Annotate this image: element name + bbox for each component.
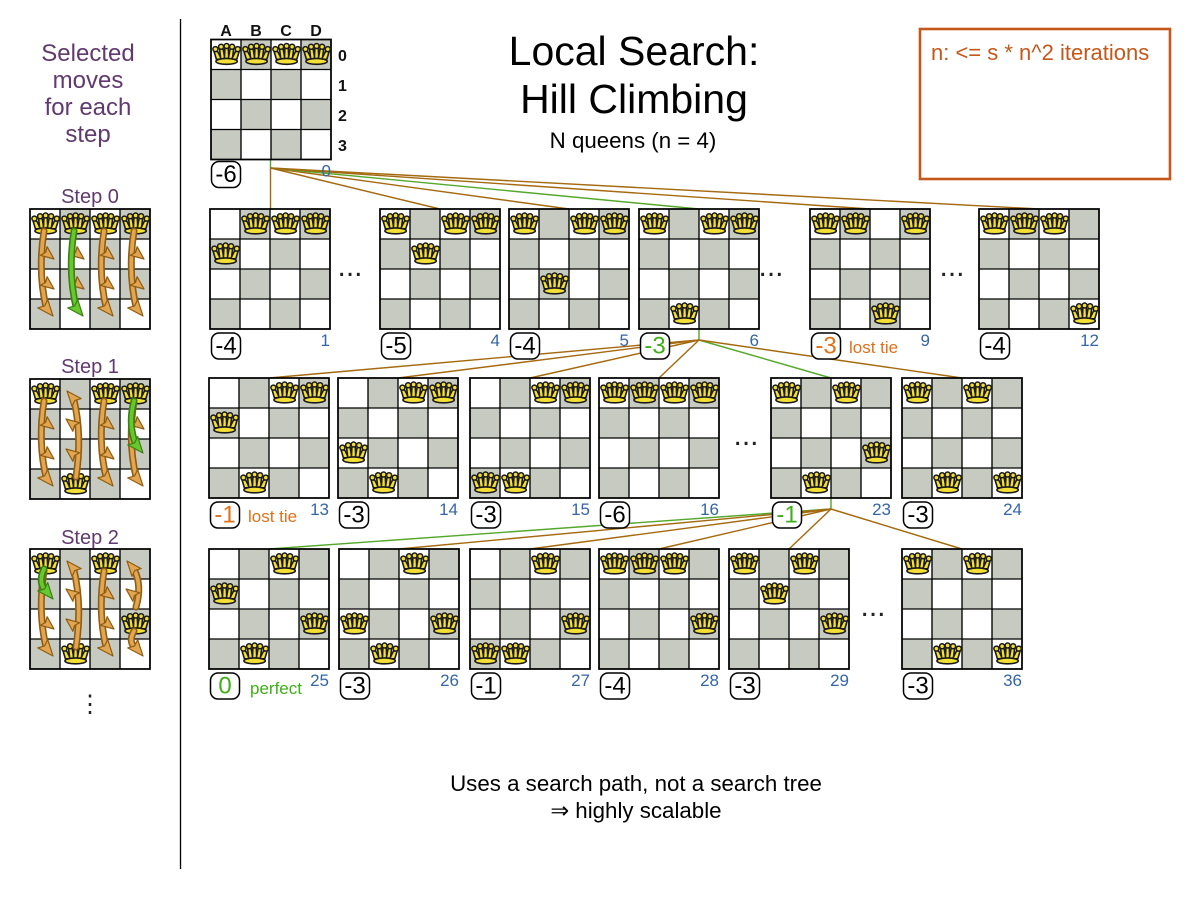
svg-text:Step 1: Step 1 xyxy=(61,356,119,378)
svg-text:16: 16 xyxy=(700,500,719,519)
svg-text:0: 0 xyxy=(338,48,347,65)
svg-text:3: 3 xyxy=(338,138,347,155)
svg-text:9: 9 xyxy=(921,331,930,350)
svg-text:-3: -3 xyxy=(344,673,365,700)
svg-text:1: 1 xyxy=(338,78,347,95)
svg-text:15: 15 xyxy=(571,500,590,519)
svg-text:⋮: ⋮ xyxy=(78,691,102,718)
svg-text:Hill Climbing: Hill Climbing xyxy=(520,76,748,122)
svg-text:step: step xyxy=(65,121,110,148)
svg-text:...: ... xyxy=(733,419,758,452)
svg-text:-4: -4 xyxy=(215,333,236,360)
svg-text:-3: -3 xyxy=(644,333,665,360)
svg-text:36: 36 xyxy=(1003,671,1022,690)
svg-text:-1: -1 xyxy=(475,673,496,700)
svg-text:-3: -3 xyxy=(343,502,364,529)
svg-text:for each: for each xyxy=(45,94,132,121)
svg-text:4: 4 xyxy=(491,331,500,350)
svg-text:26: 26 xyxy=(440,671,459,690)
svg-text:24: 24 xyxy=(1003,500,1022,519)
svg-text:D: D xyxy=(310,23,322,40)
svg-text:C: C xyxy=(280,23,292,40)
svg-text:2: 2 xyxy=(338,108,347,125)
svg-text:-3: -3 xyxy=(734,673,755,700)
svg-text:...: ... xyxy=(939,250,964,283)
svg-text:25: 25 xyxy=(310,671,329,690)
svg-text:-4: -4 xyxy=(604,673,625,700)
svg-text:moves: moves xyxy=(53,67,124,94)
svg-text:13: 13 xyxy=(310,500,329,519)
svg-text:Uses a search path, not a sear: Uses a search path, not a search tree xyxy=(450,771,822,796)
svg-text:-1: -1 xyxy=(776,502,797,529)
svg-text:lost tie: lost tie xyxy=(248,507,297,526)
svg-text:Selected: Selected xyxy=(41,40,134,67)
svg-text:29: 29 xyxy=(830,671,849,690)
svg-text:B: B xyxy=(250,23,262,40)
svg-text:Step 0: Step 0 xyxy=(61,186,119,208)
svg-text:-3: -3 xyxy=(475,502,496,529)
svg-text:n: <= s * n^2 iterations: n: <= s * n^2 iterations xyxy=(931,40,1149,65)
svg-text:-3: -3 xyxy=(815,333,836,360)
svg-text:0: 0 xyxy=(322,162,331,181)
svg-text:...: ... xyxy=(337,250,362,283)
svg-text:0: 0 xyxy=(218,673,231,700)
svg-text:-1: -1 xyxy=(214,502,235,529)
svg-text:Step 2: Step 2 xyxy=(61,527,119,549)
svg-text:lost tie: lost tie xyxy=(849,338,898,357)
svg-text:-4: -4 xyxy=(984,333,1005,360)
svg-text:⇒ highly scalable: ⇒ highly scalable xyxy=(550,798,721,823)
svg-text:27: 27 xyxy=(571,671,590,690)
svg-text:perfect: perfect xyxy=(250,679,302,698)
svg-text:14: 14 xyxy=(439,500,458,519)
svg-text:-6: -6 xyxy=(215,161,236,188)
svg-text:A: A xyxy=(220,23,232,40)
svg-text:-4: -4 xyxy=(514,333,535,360)
svg-text:...: ... xyxy=(860,590,885,623)
svg-text:Local Search:: Local Search: xyxy=(509,28,760,74)
svg-text:-3: -3 xyxy=(907,673,928,700)
svg-text:N queens (n = 4): N queens (n = 4) xyxy=(550,128,717,153)
svg-text:...: ... xyxy=(758,250,783,283)
svg-text:23: 23 xyxy=(872,500,891,519)
svg-text:28: 28 xyxy=(700,671,719,690)
svg-text:-6: -6 xyxy=(604,502,625,529)
svg-text:-3: -3 xyxy=(907,502,928,529)
svg-text:1: 1 xyxy=(321,331,330,350)
svg-text:5: 5 xyxy=(620,331,629,350)
svg-text:-5: -5 xyxy=(385,333,406,360)
svg-text:6: 6 xyxy=(750,331,759,350)
svg-text:12: 12 xyxy=(1080,331,1099,350)
